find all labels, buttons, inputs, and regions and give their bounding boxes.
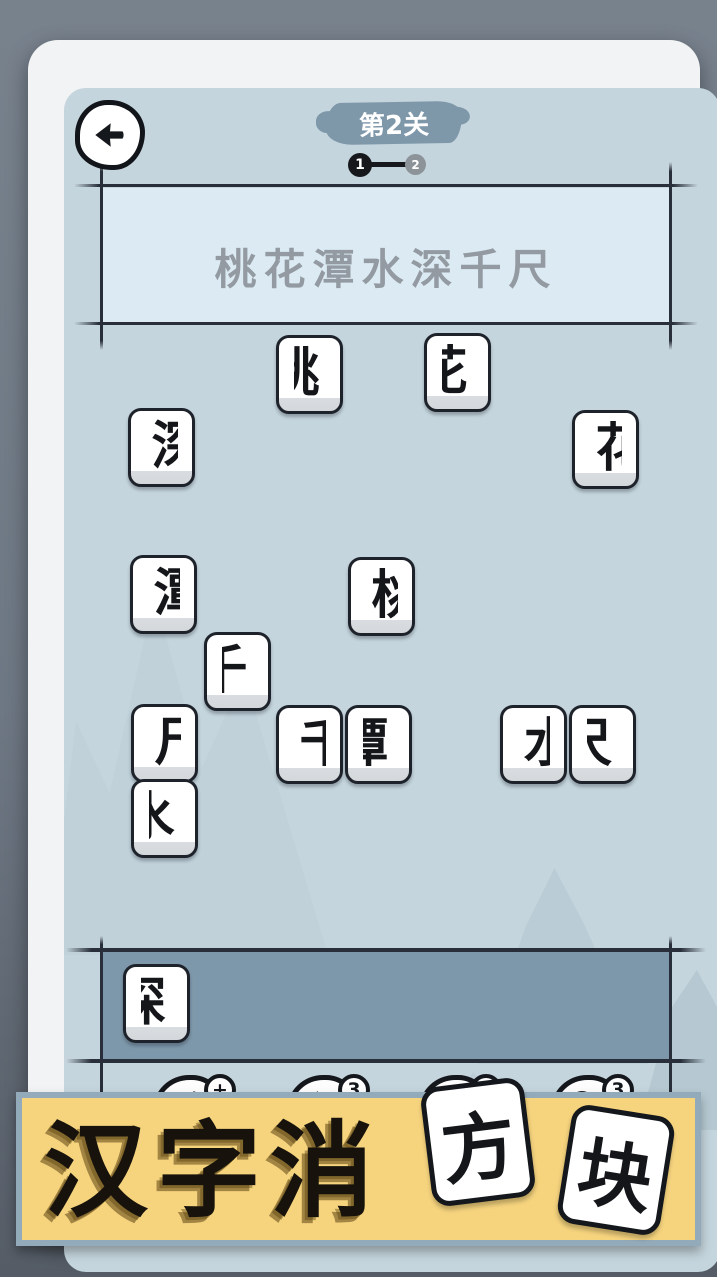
game-title-text: 汉字消 bbox=[44, 1098, 383, 1240]
progress-step-next: 2 bbox=[405, 154, 426, 175]
tile-half-glyph: 花 bbox=[590, 419, 622, 479]
tile-half-glyph: 桃 bbox=[294, 344, 326, 404]
level-banner: 第2关 bbox=[326, 101, 463, 145]
board-tile[interactable]: 深 bbox=[128, 408, 195, 487]
game-title-banner: 汉字消 方 块 bbox=[16, 1092, 701, 1246]
app-root: { "colors":{ "screen_bg":"#c5d5dd","phra… bbox=[0, 0, 717, 1277]
tile-half-glyph: 深 bbox=[146, 417, 178, 477]
tile-half-glyph: 花 bbox=[442, 342, 474, 402]
board-tile[interactable]: 千 bbox=[276, 705, 343, 784]
tile-half-glyph: 尺 bbox=[149, 713, 181, 773]
board-tile[interactable]: 花 bbox=[424, 333, 491, 412]
tile-half-glyph: 潭 bbox=[148, 564, 180, 624]
board-tile[interactable]: 潭 bbox=[130, 555, 197, 634]
board-tile[interactable]: 尺 bbox=[569, 705, 636, 784]
board-tile[interactable]: 桃 bbox=[348, 557, 415, 636]
tile-half-glyph: 尺 bbox=[587, 714, 619, 774]
arrow-left-icon bbox=[80, 105, 140, 165]
tile-half-glyph: 千 bbox=[222, 641, 254, 701]
tray-tile[interactable]: 深 bbox=[123, 964, 190, 1043]
board-tile[interactable]: 水 bbox=[131, 779, 198, 858]
board-tile[interactable]: 水 bbox=[500, 705, 567, 784]
tile-half-glyph: 水 bbox=[149, 788, 181, 848]
device-frame: 桃花潭水深千尺 桃花深花潭桃千尺千潭水尺水深 第2关 1 2 bbox=[28, 40, 700, 1240]
tile-half-glyph: 千 bbox=[294, 714, 326, 774]
back-button[interactable] bbox=[75, 100, 145, 170]
progress-step-current: 1 bbox=[348, 153, 372, 177]
board-tile[interactable]: 花 bbox=[572, 410, 639, 489]
tile-half-glyph: 水 bbox=[518, 714, 550, 774]
board-tile[interactable]: 桃 bbox=[276, 335, 343, 414]
level-label: 第2关 bbox=[359, 104, 430, 142]
tile-half-glyph: 桃 bbox=[366, 566, 398, 626]
tile-half-glyph: 深 bbox=[141, 973, 173, 1033]
board-tile[interactable]: 千 bbox=[204, 632, 271, 711]
title-tile-fang: 方 bbox=[419, 1076, 537, 1208]
board-tile[interactable]: 尺 bbox=[131, 704, 198, 783]
tile-half-glyph: 潭 bbox=[363, 714, 395, 774]
board-tile[interactable]: 潭 bbox=[345, 705, 412, 784]
title-tile-kuai: 块 bbox=[555, 1103, 676, 1238]
